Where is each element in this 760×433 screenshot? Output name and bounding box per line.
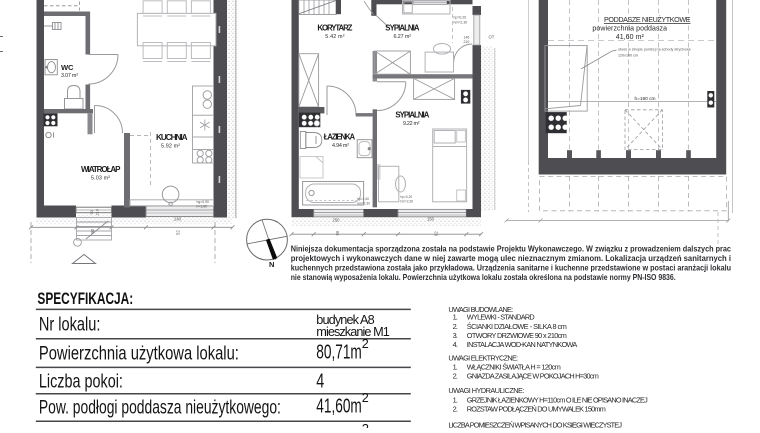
svg-text:52: 52 xyxy=(176,230,181,235)
svg-text:2: 2 xyxy=(362,421,369,428)
svg-text:210: 210 xyxy=(464,40,470,44)
svg-text:GNIAZDA ZASILAJĄCE W POKOJACH: GNIAZDA ZASILAJĄCE W POKOJACH H=30cm xyxy=(467,371,599,380)
svg-text:1.: 1. xyxy=(453,313,458,322)
svg-text:ŚCIANKI DZIAŁOWE - SILKA 8 cm: ŚCIANKI DZIAŁOWE - SILKA 8 cm xyxy=(467,322,567,331)
svg-text:WIATROŁAP: WIATROŁAP xyxy=(81,165,121,174)
svg-text:kuchennych przedstawiona zosta: kuchennych przedstawiona została jako pr… xyxy=(291,263,731,273)
svg-text:KUCHNIA: KUCHNIA xyxy=(156,133,188,142)
svg-text:250: 250 xyxy=(333,218,341,223)
svg-text:41,60 m²: 41,60 m² xyxy=(616,34,645,41)
svg-text:PODDASZE NIEUŻYTKOWE: PODDASZE NIEUŻYTKOWE xyxy=(604,15,691,24)
svg-text:OTWORY DRZWIOWE 90 x 210cm: OTWORY DRZWIOWE 90 x 210cm xyxy=(467,331,567,340)
svg-text:Liczba pokoi:: Liczba pokoi: xyxy=(39,371,123,393)
svg-text:mieszkanie M1: mieszkanie M1 xyxy=(316,325,390,339)
svg-text:powierzchnia poddasza: powierzchnia poddasza xyxy=(592,26,667,33)
svg-text:120x180 cm: 120x180 cm xyxy=(618,54,638,58)
svg-text:3.: 3. xyxy=(453,331,458,340)
svg-text:6.27 m²: 6.27 m² xyxy=(394,34,412,40)
svg-text:2.: 2. xyxy=(453,371,458,380)
svg-text:h=1,60: h=1,60 xyxy=(197,205,208,209)
svg-text:N: N xyxy=(269,260,274,269)
svg-text:4.94 m²: 4.94 m² xyxy=(332,143,349,149)
svg-text:hm=2,30: hm=2,30 xyxy=(357,201,370,205)
svg-text:5.42 m²: 5.42 m² xyxy=(325,34,344,40)
svg-text:nie stanowią wyposażenia lokal: nie stanowią wyposażenia lokalu. Powierz… xyxy=(291,272,676,282)
svg-text:1.: 1. xyxy=(453,395,458,404)
svg-text:Nr lokalu:: Nr lokalu: xyxy=(39,313,101,335)
svg-text:UWAGI ELEKTRYCZNE:: UWAGI ELEKTRYCZNE: xyxy=(448,353,518,362)
svg-text:90: 90 xyxy=(335,230,340,235)
svg-text:4: 4 xyxy=(316,371,324,393)
svg-text:hm=2,30: hm=2,30 xyxy=(454,21,468,25)
svg-text:150: 150 xyxy=(427,217,435,222)
svg-text:2: 2 xyxy=(362,390,369,405)
svg-text:92: 92 xyxy=(90,228,95,233)
svg-text:h=190 cm: h=190 cm xyxy=(635,96,656,102)
svg-text:ŁAZIENKA: ŁAZIENKA xyxy=(324,133,356,142)
svg-text:KORYTARZ: KORYTARZ xyxy=(317,24,352,33)
svg-text:41,60m: 41,60m xyxy=(316,396,362,418)
svg-text:otwór w stropie poniżej na sch: otwór w stropie poniżej na schody strych… xyxy=(618,48,691,52)
svg-text:9.22 m²: 9.22 m² xyxy=(403,121,420,127)
svg-text:ROZSTAW PODŁĄCZEŃ DO UMYWALEK: ROZSTAW PODŁĄCZEŃ DO UMYWALEK 150mm xyxy=(467,404,606,413)
svg-text:LICZBA POMIESZCZEŃ WPISANYCH D: LICZBA POMIESZCZEŃ WPISANYCH DO KSIĘGI W… xyxy=(448,420,622,428)
svg-text:OT: OT xyxy=(489,35,495,40)
svg-text:SPECYFIKACJA:: SPECYFIKACJA: xyxy=(37,290,133,308)
svg-text:hp=0,20: hp=0,20 xyxy=(454,16,467,20)
svg-text:WC: WC xyxy=(61,63,74,72)
svg-text:5.03 m²: 5.03 m² xyxy=(91,176,110,182)
svg-text:240: 240 xyxy=(174,217,182,222)
svg-text:hg=0,90: hg=0,90 xyxy=(197,200,209,204)
svg-text:2: 2 xyxy=(362,336,369,351)
svg-text:80,71m: 80,71m xyxy=(316,342,362,364)
svg-text:210: 210 xyxy=(96,209,100,215)
svg-text:SYPIALNIA: SYPIALNIA xyxy=(395,111,429,120)
svg-text:Niniejsza dokumentacja sporząd: Niniejsza dokumentacja sporządzona zosta… xyxy=(291,244,732,254)
svg-text:Powierzchnia użytkowa lokalu:: Powierzchnia użytkowa lokalu: xyxy=(39,343,239,365)
svg-text:5.92 m²: 5.92 m² xyxy=(161,144,180,150)
svg-text:2.: 2. xyxy=(453,322,458,331)
svg-text:146: 146 xyxy=(464,36,470,40)
svg-text:92: 92 xyxy=(434,231,439,236)
svg-text:4.: 4. xyxy=(453,340,458,349)
svg-text:hm=2,30: hm=2,30 xyxy=(401,199,414,203)
svg-text:Pow. podłogi poddasza nieużytk: Pow. podłogi poddasza nieużytkowego: xyxy=(39,397,281,419)
svg-text:1.: 1. xyxy=(453,362,458,371)
svg-text:WŁĄCZNIKI ŚWIATŁA H = 120cm: WŁĄCZNIKI ŚWIATŁA H = 120cm xyxy=(467,362,561,371)
svg-text:INSTALACJA WOD-KAN NATYNKOWA: INSTALACJA WOD-KAN NATYNKOWA xyxy=(467,340,578,349)
svg-text:SYPIALNIA: SYPIALNIA xyxy=(385,24,420,33)
svg-text:3.07 m²: 3.07 m² xyxy=(61,73,78,79)
svg-text:WYLEWKI - STANDARD: WYLEWKI - STANDARD xyxy=(467,313,535,322)
svg-text:GRZEJNIK ŁAZIENKOWY H=110cm O: GRZEJNIK ŁAZIENKOWY H=110cm O ILE NIE OP… xyxy=(467,395,648,404)
svg-text:2.: 2. xyxy=(453,404,458,413)
svg-text:90: 90 xyxy=(90,210,94,214)
svg-text:UWAGI HYDRAULICZNE:: UWAGI HYDRAULICZNE: xyxy=(448,386,524,395)
